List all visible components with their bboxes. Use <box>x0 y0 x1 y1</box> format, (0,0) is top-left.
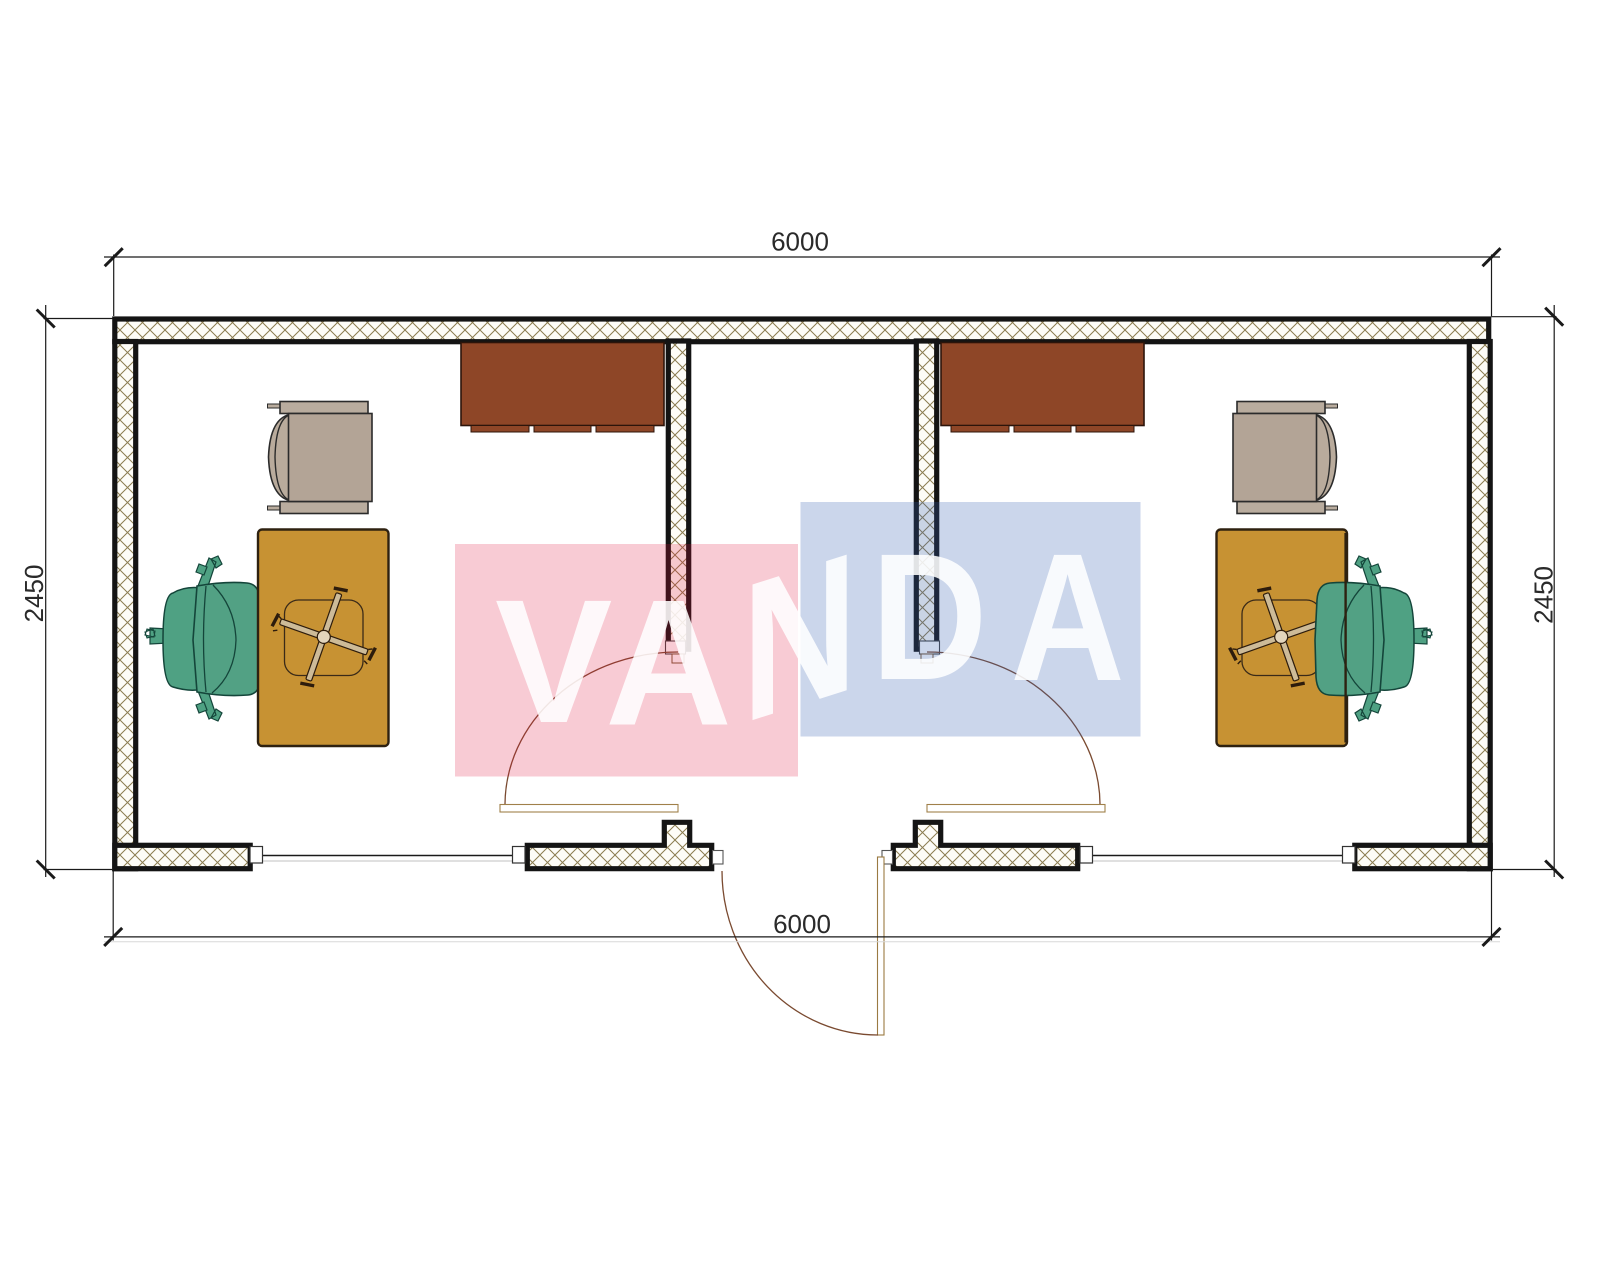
svg-text:6000: 6000 <box>773 909 831 939</box>
svg-text:A: A <box>1010 517 1124 720</box>
svg-text:N: N <box>742 508 858 765</box>
svg-text:V: V <box>495 564 612 760</box>
svg-text:6000: 6000 <box>771 227 829 257</box>
svg-text:D: D <box>871 517 988 718</box>
svg-text:2450: 2450 <box>1528 566 1558 624</box>
svg-text:A: A <box>605 562 732 763</box>
svg-text:2450: 2450 <box>19 565 49 623</box>
